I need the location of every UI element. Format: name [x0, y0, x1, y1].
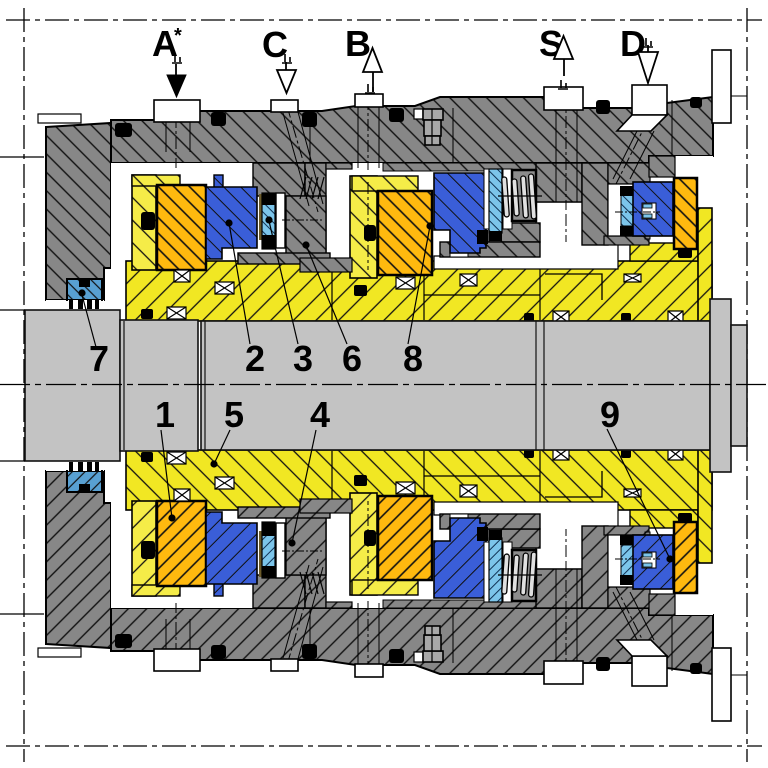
- svg-text:4: 4: [310, 394, 330, 435]
- svg-text:2: 2: [245, 338, 265, 379]
- svg-text:6: 6: [342, 338, 362, 379]
- svg-text:9: 9: [600, 394, 620, 435]
- svg-text:7: 7: [89, 338, 109, 379]
- svg-text:*: *: [174, 25, 182, 47]
- svg-text:C: C: [262, 24, 288, 65]
- svg-text:B: B: [345, 23, 371, 64]
- svg-text:5: 5: [224, 394, 244, 435]
- svg-text:3: 3: [293, 338, 313, 379]
- svg-text:8: 8: [403, 338, 423, 379]
- svg-text:1: 1: [155, 394, 175, 435]
